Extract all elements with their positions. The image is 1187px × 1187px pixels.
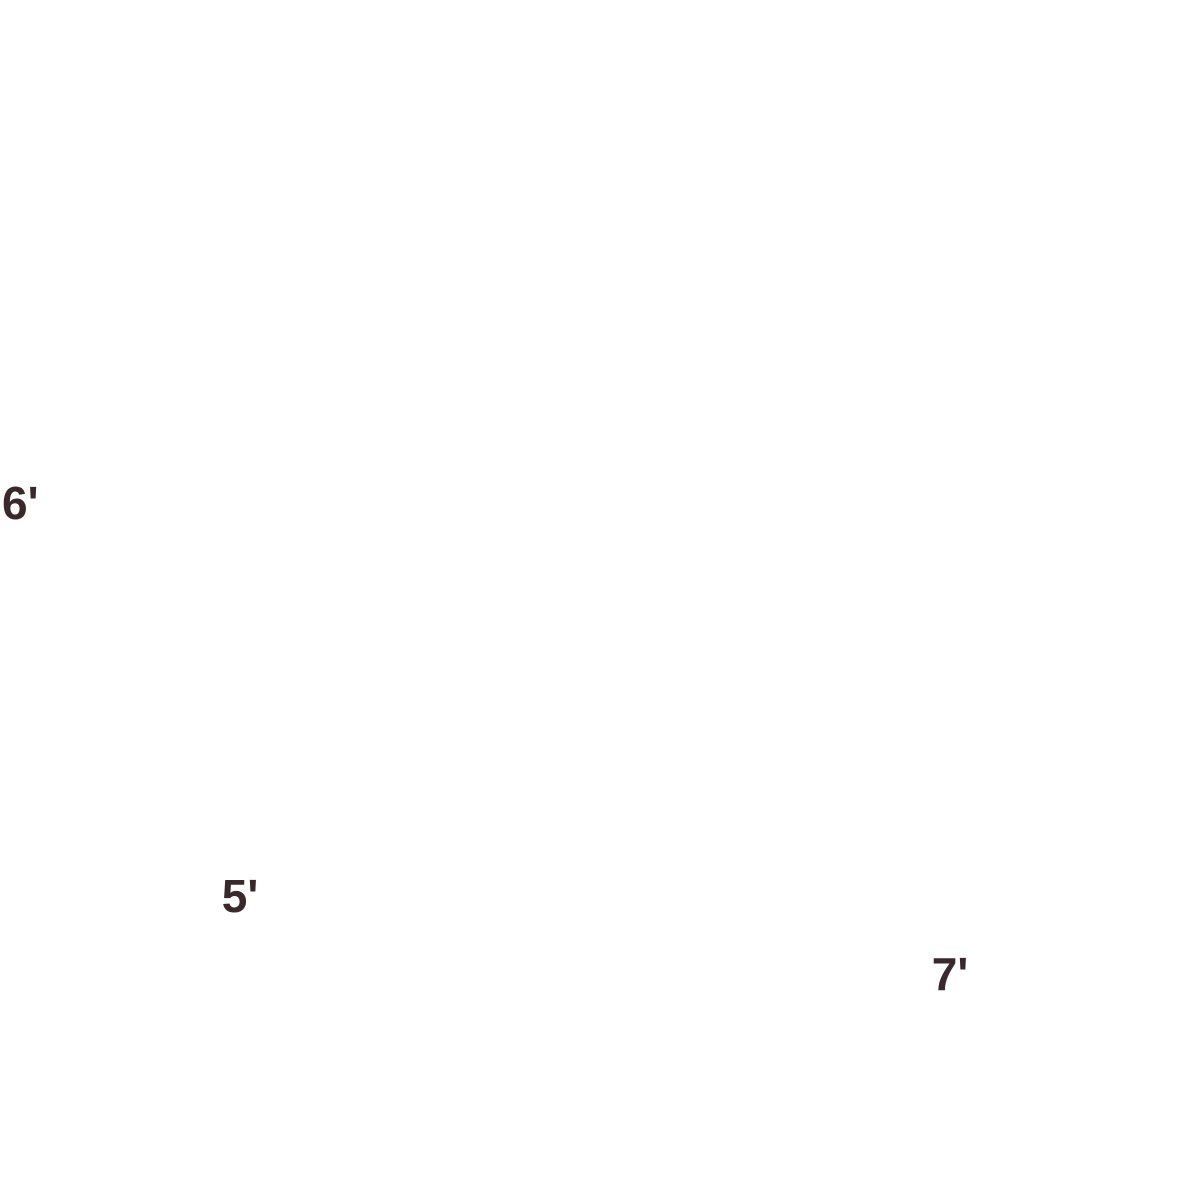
height-dimension-label: 6' xyxy=(2,477,39,529)
width-dimension-label: 7' xyxy=(932,948,969,1000)
storage-unit-illustration: 6' 5' 7' xyxy=(0,0,1187,1187)
isometric-scene: 6' 5' 7' xyxy=(0,0,1187,1187)
dimension-annotations: 6' 5' 7' xyxy=(2,477,968,1000)
depth-dimension-label: 5' xyxy=(222,870,259,922)
